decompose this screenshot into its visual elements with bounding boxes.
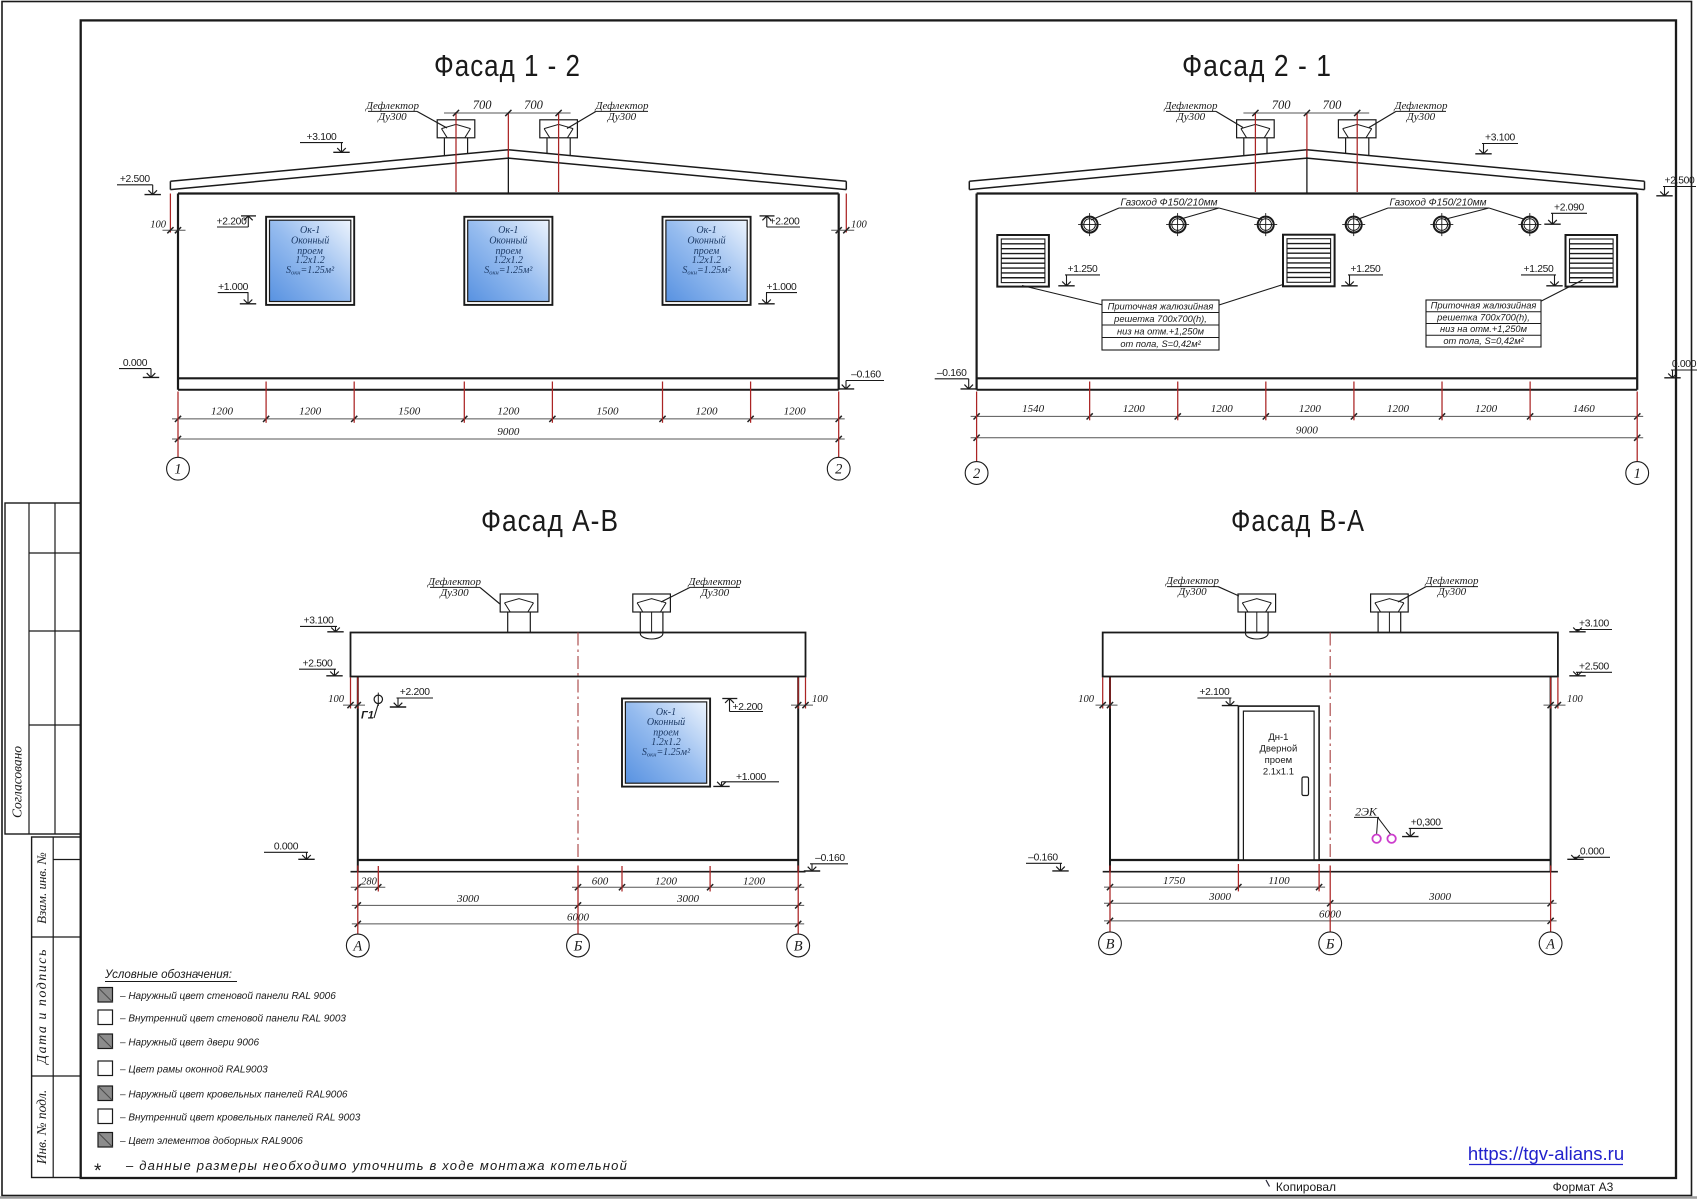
svg-text:Газоход Ф150/210мм: Газоход Ф150/210мм (1390, 198, 1487, 209)
svg-text:+1.000: +1.000 (767, 282, 798, 293)
svg-text:+2.500: +2.500 (1579, 662, 1610, 673)
svg-text:Фасад В-А: Фасад В-А (1231, 503, 1365, 538)
svg-text:–0.160: –0.160 (937, 368, 967, 379)
svg-text:Дн-1: Дн-1 (1268, 732, 1288, 743)
svg-text:– Наружный цвет двери 9006: – Наружный цвет двери 9006 (119, 1038, 259, 1049)
svg-text:+2.500: +2.500 (303, 658, 334, 669)
svg-text:1750: 1750 (1163, 875, 1186, 887)
svg-text:100: 100 (1567, 694, 1584, 705)
svg-text:Согласовано: Согласовано (10, 746, 25, 818)
svg-text:1200: 1200 (655, 875, 678, 887)
svg-text:– Наружный цвет кровельных па: – Наружный цвет кровельных панелей RAL90… (119, 1090, 348, 1101)
svg-text:100: 100 (328, 694, 345, 705)
svg-text:Ду300: Ду300 (1177, 586, 1207, 598)
svg-text:+3.100: +3.100 (307, 132, 338, 143)
svg-text:https://tgv-alians.ru: https://tgv-alians.ru (1468, 1143, 1624, 1164)
svg-text:Инв. № подл.: Инв. № подл. (34, 1090, 49, 1166)
svg-text:Фасад 1 - 2: Фасад 1 - 2 (434, 48, 581, 83)
svg-text:+2.200: +2.200 (770, 217, 801, 228)
svg-text:1: 1 (1634, 466, 1641, 482)
svg-text:1100: 1100 (1268, 875, 1290, 887)
svg-text:Копировал: Копировал (1276, 1180, 1336, 1194)
svg-text:1: 1 (174, 462, 181, 478)
svg-text:Ду300: Ду300 (700, 587, 730, 599)
svg-text:+3.100: +3.100 (1485, 133, 1516, 144)
svg-text:+0,300: +0,300 (1411, 818, 1442, 829)
svg-text:0.000: 0.000 (274, 842, 299, 853)
svg-text:А: А (352, 939, 362, 955)
svg-text:2: 2 (973, 466, 980, 482)
svg-text:Приточная жалюзийная: Приточная жалюзийная (1431, 301, 1537, 311)
svg-text:+2.500: +2.500 (120, 174, 151, 185)
svg-text:100: 100 (851, 219, 868, 230)
svg-text:решетка 700х700(h),: решетка 700х700(h), (1113, 314, 1207, 324)
svg-text:1500: 1500 (596, 406, 619, 418)
svg-text:Б: Б (573, 939, 583, 955)
svg-text:2.1х1.1: 2.1х1.1 (1263, 767, 1294, 778)
svg-text:700: 700 (1323, 98, 1343, 112)
svg-text:3000: 3000 (1208, 891, 1232, 903)
svg-text:А: А (1545, 936, 1555, 952)
svg-text:Фасад 2 - 1: Фасад 2 - 1 (1182, 48, 1332, 83)
svg-text:– Наружный цвет стеновой пане: – Наружный цвет стеновой панели RAL 9006 (119, 991, 336, 1002)
svg-text:9000: 9000 (497, 426, 520, 438)
svg-text:700: 700 (524, 98, 544, 112)
svg-text:100: 100 (150, 219, 167, 230)
svg-text:Ду300: Ду300 (1406, 111, 1436, 123)
svg-text:– Цвет рамы оконной RAL9003: – Цвет рамы оконной RAL9003 (119, 1065, 268, 1076)
svg-text:700: 700 (473, 98, 493, 112)
svg-text:1460: 1460 (1573, 403, 1596, 415)
svg-text:Формат А3: Формат А3 (1553, 1180, 1614, 1194)
svg-text:решетка 700х700(h),: решетка 700х700(h), (1436, 312, 1530, 322)
svg-text:+1.250: +1.250 (1351, 264, 1382, 275)
svg-text:+2.500: +2.500 (1665, 176, 1696, 187)
svg-text:100: 100 (1078, 694, 1095, 705)
svg-text:*: * (94, 1161, 102, 1182)
svg-text:+3.100: +3.100 (1579, 619, 1610, 630)
svg-text:+1.250: +1.250 (1068, 264, 1099, 275)
svg-text:Ду300: Ду300 (377, 111, 407, 123)
svg-text:В: В (1106, 936, 1115, 952)
svg-text:– Внутренний цвет стеновой па: – Внутренний цвет стеновой панели RAL 90… (119, 1014, 346, 1025)
svg-text:1200: 1200 (1387, 403, 1410, 415)
svg-text:Дата и подпись: Дата и подпись (35, 948, 50, 1066)
svg-text:1200: 1200 (1123, 403, 1146, 415)
svg-text:+2.200: +2.200 (400, 687, 431, 698)
svg-text:В: В (794, 939, 803, 955)
svg-text:1200: 1200 (211, 406, 234, 418)
svg-text:280: 280 (361, 876, 378, 887)
svg-text:от пола, S=0,42м²: от пола, S=0,42м² (1443, 336, 1524, 346)
svg-text:1200: 1200 (743, 875, 766, 887)
svg-text:+2.200: +2.200 (217, 217, 248, 228)
svg-text:Г1: Г1 (361, 710, 374, 722)
svg-text:1200: 1200 (1475, 403, 1498, 415)
svg-text:– данные размеры необходимо у: – данные размеры необходимо уточнить в х… (125, 1158, 628, 1173)
svg-text:–0.160: –0.160 (851, 370, 881, 381)
svg-text:–0.160: –0.160 (815, 853, 845, 864)
svg-text:1200: 1200 (299, 406, 322, 418)
svg-text:0.000: 0.000 (1580, 847, 1605, 858)
svg-text:Фасад А-В: Фасад А-В (481, 503, 619, 538)
svg-text:Условные обозначения:: Условные обозначения: (104, 969, 232, 981)
svg-text:Приточная жалюзийная: Приточная жалюзийная (1108, 301, 1214, 311)
svg-text:600: 600 (592, 875, 609, 887)
svg-text:+1.000: +1.000 (218, 282, 249, 293)
svg-text:1200: 1200 (784, 406, 807, 418)
svg-text:2ЭК: 2ЭК (1355, 805, 1378, 819)
svg-text:3000: 3000 (1428, 891, 1452, 903)
svg-text:Б: Б (1325, 936, 1335, 952)
svg-text:100: 100 (812, 694, 829, 705)
svg-text:3000: 3000 (456, 893, 480, 905)
svg-text:700: 700 (1272, 98, 1292, 112)
svg-text:–0.160: –0.160 (1028, 853, 1058, 864)
svg-text:1200: 1200 (696, 406, 719, 418)
svg-text:– Цвет элементов доборных RAL: – Цвет элементов доборных RAL9006 (119, 1135, 303, 1147)
svg-text:Ду300: Ду300 (1437, 586, 1467, 598)
svg-text:от пола, S=0,42м²: от пола, S=0,42м² (1120, 339, 1201, 349)
svg-text:1200: 1200 (1211, 403, 1234, 415)
svg-text:0.000: 0.000 (1672, 359, 1697, 370)
svg-text:Ду300: Ду300 (1176, 111, 1206, 123)
svg-text:низ на отм.+1,250м: низ на отм.+1,250м (1117, 326, 1205, 336)
svg-text:3000: 3000 (676, 893, 700, 905)
svg-text:9000: 9000 (1296, 425, 1319, 437)
svg-text:+2.100: +2.100 (1199, 687, 1230, 698)
svg-text:+2.090: +2.090 (1554, 203, 1585, 214)
svg-text:1200: 1200 (1299, 403, 1322, 415)
svg-text:низ на отм.+1,250м: низ на отм.+1,250м (1440, 324, 1528, 334)
svg-text:0.000: 0.000 (123, 358, 148, 369)
svg-text:Взам. инв. №: Взам. инв. № (34, 852, 49, 924)
svg-text:+3.100: +3.100 (304, 616, 335, 627)
svg-text:проем: проем (1265, 755, 1293, 766)
svg-text:– Внутренний цвет кровельных: – Внутренний цвет кровельных панелей RAL… (119, 1113, 361, 1124)
svg-text:1500: 1500 (398, 406, 421, 418)
svg-text:1200: 1200 (497, 406, 520, 418)
svg-text:1540: 1540 (1022, 403, 1045, 415)
svg-text:Ду300: Ду300 (607, 111, 637, 123)
svg-text:2: 2 (835, 462, 842, 478)
svg-text:Газоход Ф150/210мм: Газоход Ф150/210мм (1121, 198, 1218, 209)
svg-text:Ду300: Ду300 (439, 587, 469, 599)
svg-text:+1.250: +1.250 (1524, 264, 1555, 275)
svg-text:Дверной: Дверной (1260, 744, 1298, 755)
